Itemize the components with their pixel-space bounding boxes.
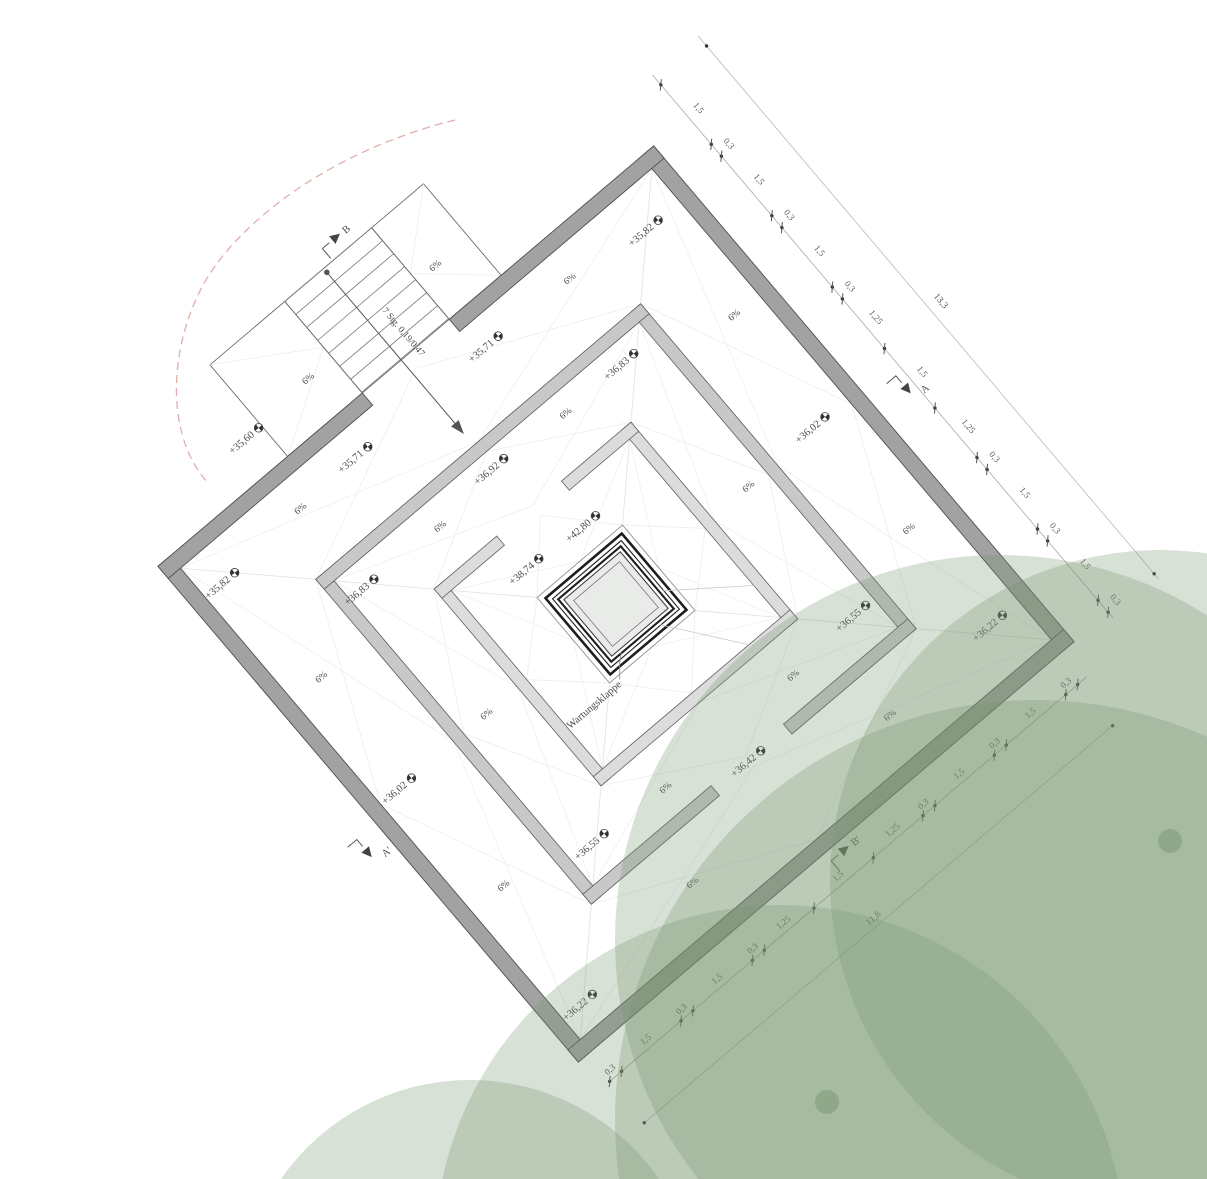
plan-line: [716, 151, 727, 162]
dimension-label: 1,5: [812, 243, 827, 258]
section-label: A: [919, 383, 932, 397]
dimension-label: 0,3: [987, 449, 1002, 464]
plan-line: [766, 210, 777, 221]
plan-line: [1032, 523, 1043, 534]
plan-line: [827, 281, 838, 292]
dimension-label: 1,5: [915, 364, 930, 379]
plan-line: [981, 464, 992, 475]
dimension-label: 1,5: [691, 100, 706, 115]
dimension-label: 0,3: [782, 207, 797, 222]
dimension-label: 0,3: [843, 279, 858, 294]
dimension-label: 1,5: [1017, 485, 1032, 500]
plan-line: [879, 343, 890, 354]
plan-line: [655, 79, 666, 90]
dimension-label: 1,25: [960, 417, 978, 436]
plan-line: [971, 452, 982, 463]
dimension-label: 0,3: [721, 136, 736, 151]
roof-plan-drawing: 7 Stg. 0,19/0,47Wartungsklappe+35,60+35,…: [0, 0, 1207, 1179]
plan-line: [1042, 535, 1053, 546]
elevation-label: +35,60: [227, 429, 257, 456]
plan-line: [776, 222, 787, 233]
dimension-label: 0,3: [1048, 521, 1063, 536]
dimension-total-label: 13,3: [931, 292, 950, 311]
shrub: [815, 1090, 839, 1114]
shrub: [1158, 829, 1182, 853]
dimension-label: 1,5: [752, 172, 767, 187]
plan-line: [929, 402, 940, 413]
dimension-label: 1,25: [867, 308, 885, 327]
plan-line: [837, 293, 848, 304]
section-label: B: [340, 223, 352, 236]
plan-line: [706, 139, 717, 150]
section-label: A': [380, 845, 394, 860]
roof-plan-canvas: 7 Stg. 0,19/0,47Wartungsklappe+35,60+35,…: [0, 0, 1207, 1179]
